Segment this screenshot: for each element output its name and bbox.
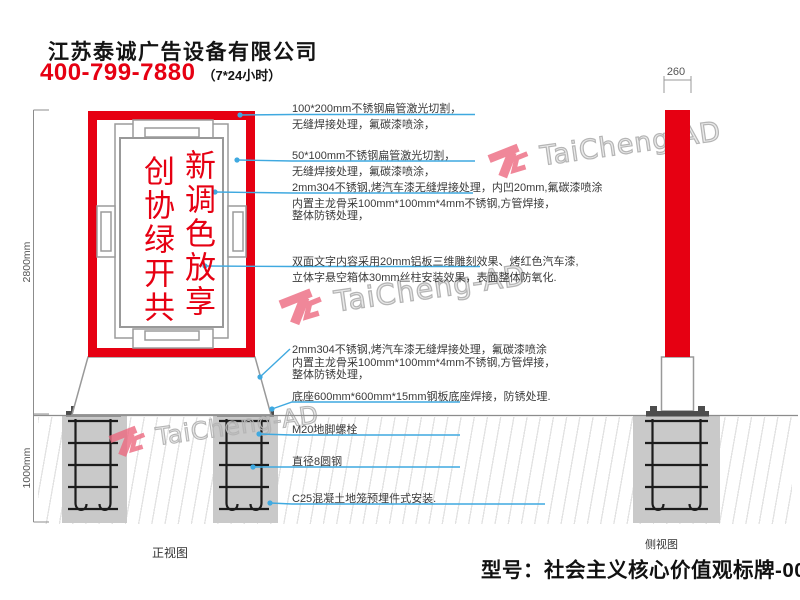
annotation-round-steel: 直径8圆钢	[292, 456, 560, 469]
annotation-panel-steel: 2mm304不锈钢,烤汽车漆无缝焊接处理，内凹20mm,氟碳漆喷涂 内置主龙骨采…	[292, 182, 560, 223]
dimension-lines-left	[34, 110, 50, 522]
side-base-plate	[646, 411, 709, 417]
sign-text-left-column: 创协绿开共	[140, 155, 172, 325]
dimension-260-bracket	[664, 76, 691, 93]
phone-number: 400-799-7880	[40, 59, 195, 87]
side-red-column	[665, 110, 690, 357]
annotation-line: 立体字悬空箱体30mm丝柱安装效果，表面整体防氧化.	[292, 272, 560, 285]
annotation-line: 内置主龙骨采100mm*100mm*4mm不锈钢,方管焊接，	[292, 357, 560, 370]
annotation-anchor-bolt: M20地脚螺栓	[292, 424, 560, 437]
model-number: 型号：社会主义核心价值观标牌-0076	[481, 553, 800, 583]
annotation-line: 50*100mm不锈钢扁管激光切割，	[292, 150, 560, 163]
annotation-line: 整体防锈处理，	[292, 369, 560, 382]
side-view-drawing	[646, 76, 709, 417]
dimension-260: 260	[658, 66, 694, 78]
annotation-line: M20地脚螺栓	[292, 424, 560, 437]
dimension-1000mm: 1000mm	[21, 441, 33, 495]
annotation-line: 直径8圆钢	[292, 456, 560, 469]
annotation-line: 双面文字内容采用20mm铝板三维雕刻效果、烤红色汽车漆,	[292, 256, 560, 269]
annotation-frame-tube: 50*100mm不锈钢扁管激光切割， 无缝焊接处理，氟碳漆喷涂，	[292, 150, 560, 178]
front-base-trapezoid	[72, 357, 271, 415]
annotation-line: C25混凝土地笼预埋件式安装.	[292, 493, 560, 506]
technical-drawing-page: TaiCheng-AD TaiCheng-AD TaiCheng-AD	[0, 0, 800, 600]
annotation-line: 100*200mm不锈钢扁管激光切割，	[292, 103, 560, 116]
annotation-line: 无缝焊接处理，氟碳漆喷涂，	[292, 119, 560, 132]
sign-text-right-column: 新调色放享	[181, 149, 213, 319]
annotation-line: 内置主龙骨采100mm*100mm*4mm不锈钢,方管焊接，	[292, 198, 560, 211]
annotation-concrete: C25混凝土地笼预埋件式安装.	[292, 493, 560, 506]
annotation-base-plate: 底座600mm*600mm*15mm钢板底座焊接，防锈处理.	[292, 391, 560, 404]
annotation-base-steel: 2mm304不锈钢,烤汽车漆无缝焊接处理，氟碳漆喷涂 内置主龙骨采100mm*1…	[292, 344, 560, 382]
service-hours: （7*24小时）	[202, 65, 281, 84]
main-drawing	[0, 0, 800, 600]
annotation-line: 底座600mm*600mm*15mm钢板底座焊接，防锈处理.	[292, 391, 560, 404]
annotation-line: 2mm304不锈钢,烤汽车漆无缝焊接处理，内凹20mm,氟碳漆喷涂	[292, 182, 560, 195]
annotation-line: 无缝焊接处理，氟碳漆喷涂，	[292, 166, 560, 179]
annotation-top-tube: 100*200mm不锈钢扁管激光切割， 无缝焊接处理，氟碳漆喷涂，	[292, 103, 560, 131]
annotation-line: 整体防锈处理，	[292, 210, 560, 223]
side-base-box	[662, 357, 694, 411]
dimension-2800mm: 2800mm	[21, 235, 33, 289]
annotation-line: 2mm304不锈钢,烤汽车漆无缝焊接处理，氟碳漆喷涂	[292, 344, 560, 357]
front-view-label: 正视图	[152, 544, 188, 561]
annotation-lettering: 双面文字内容采用20mm铝板三维雕刻效果、烤红色汽车漆, 立体字悬空箱体30mm…	[292, 256, 560, 284]
side-view-label: 侧视图	[645, 536, 678, 552]
